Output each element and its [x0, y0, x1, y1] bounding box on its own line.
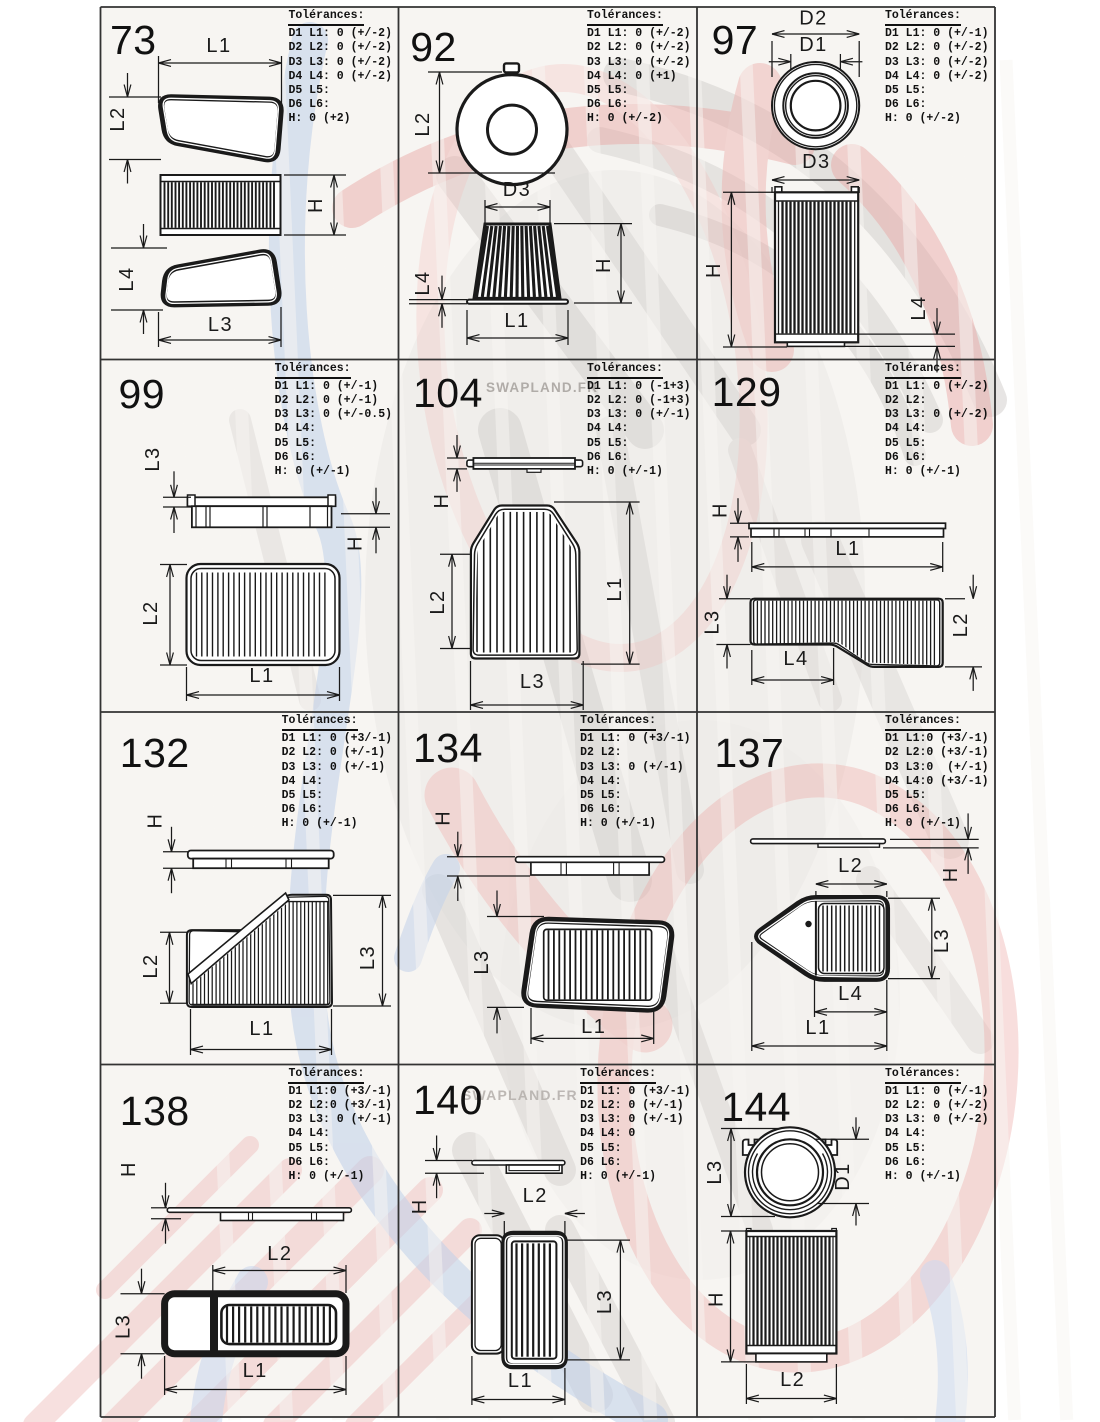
svg-text:L1: L1: [242, 1360, 267, 1382]
svg-text:H: H: [344, 535, 366, 551]
svg-text:L4: L4: [412, 270, 434, 295]
svg-text:L3: L3: [471, 949, 493, 974]
svg-text:L2: L2: [838, 855, 863, 877]
svg-text:L2: L2: [412, 111, 434, 136]
svg-text:L2: L2: [267, 1243, 292, 1265]
svg-text:L2: L2: [140, 953, 162, 978]
svg-text:H: H: [710, 502, 732, 518]
svg-text:L2: L2: [950, 612, 972, 637]
svg-text:L4: L4: [908, 295, 930, 320]
svg-text:L2: L2: [140, 600, 162, 625]
svg-text:L4: L4: [838, 983, 863, 1005]
svg-text:L3: L3: [519, 671, 544, 693]
svg-text:L3: L3: [112, 1313, 134, 1338]
svg-text:L4: L4: [116, 266, 138, 291]
svg-text:L2: L2: [522, 1184, 547, 1206]
svg-text:H: H: [118, 1161, 140, 1177]
svg-text:L1: L1: [835, 538, 860, 560]
svg-text:L1: L1: [249, 1018, 274, 1040]
svg-text:L3: L3: [704, 1159, 726, 1184]
svg-text:L3: L3: [357, 945, 379, 970]
svg-text:L3: L3: [142, 446, 164, 471]
svg-text:L3: L3: [207, 314, 232, 336]
svg-text:D1: D1: [832, 1162, 854, 1191]
svg-text:H: H: [703, 262, 725, 278]
svg-text:L1: L1: [604, 576, 626, 601]
svg-text:D1: D1: [799, 34, 828, 56]
svg-text:L4: L4: [783, 648, 808, 670]
svg-text:L3: L3: [931, 928, 953, 953]
svg-text:L2: L2: [780, 1369, 805, 1391]
svg-text:L2: L2: [107, 106, 129, 131]
svg-text:L1: L1: [249, 665, 274, 687]
svg-text:H: H: [593, 257, 615, 273]
svg-text:L1: L1: [805, 1017, 830, 1039]
svg-text:H: H: [305, 197, 327, 213]
svg-text:L3: L3: [702, 609, 724, 634]
svg-text:L1: L1: [504, 310, 529, 332]
svg-text:H: H: [940, 866, 962, 882]
svg-text:H: H: [432, 810, 454, 826]
svg-text:L2: L2: [427, 589, 449, 614]
svg-text:D2: D2: [799, 8, 828, 30]
svg-text:L3: L3: [594, 1288, 616, 1313]
svg-text:L1: L1: [206, 35, 231, 57]
svg-text:L1: L1: [507, 1370, 532, 1392]
svg-text:D3: D3: [802, 151, 831, 173]
svg-text:H: H: [408, 1198, 430, 1214]
svg-text:H: H: [431, 492, 453, 508]
svg-text:H: H: [144, 813, 166, 829]
svg-text:L1: L1: [581, 1016, 606, 1038]
svg-text:H: H: [705, 1291, 727, 1307]
svg-text:D3: D3: [502, 179, 531, 201]
